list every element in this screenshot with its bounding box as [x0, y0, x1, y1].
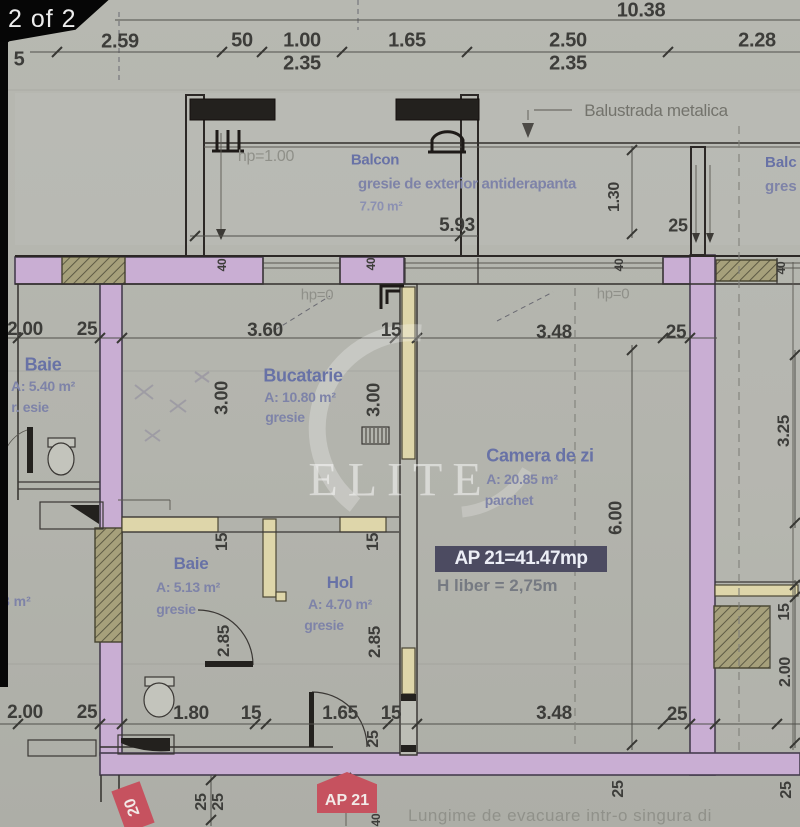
dim-balcony-130: 1.30 — [606, 182, 624, 212]
dim-bot-200: 2.00 — [7, 702, 43, 724]
dim-mid-25b: 25 — [666, 322, 687, 344]
dim-wall-40-c: 40 — [612, 259, 626, 272]
room-hol-name: Hol — [327, 573, 353, 593]
dim-mid-348: 3.48 — [536, 322, 572, 344]
dim-top-250: 2.50 — [549, 30, 587, 53]
dim-v-15b: 15 — [363, 533, 383, 551]
dim-v-15r: 15 — [776, 603, 794, 620]
room-camera-finish: parchet — [485, 492, 533, 508]
dim-bot-25b: 25 — [667, 704, 688, 726]
room-balcon-finish: gresie de exterior antiderapanta — [358, 176, 576, 193]
dim-top-259: 2.59 — [101, 31, 139, 54]
dim-v-300a: 3.00 — [212, 381, 233, 415]
room-hol-finish: gresie — [304, 617, 343, 633]
sink-fixture — [118, 735, 174, 754]
dim-top-228: 2.28 — [738, 30, 776, 53]
dim-wall-25-top: 25 — [668, 216, 687, 237]
radiator-symbol — [362, 427, 389, 444]
dim-top-50: 50 — [231, 30, 253, 53]
dim-v-200r: 2.00 — [777, 657, 795, 687]
room-balcon-name: Balcon — [351, 152, 399, 169]
dim-wall-40-b: 40 — [364, 258, 378, 271]
ceiling-height-label: H liber = 2,75m — [437, 576, 557, 596]
dim-bot-180: 1.80 — [173, 703, 209, 725]
hp-left-label: hp=0 — [301, 287, 334, 304]
room-baie2-area: A: 5.13 m² — [156, 579, 220, 595]
dim-mid-15: 15 — [381, 320, 402, 342]
dim-bot-25-rot: 25 — [365, 730, 383, 747]
dim-strip-25d: 25 — [778, 781, 796, 798]
dim-bot-165: 1.65 — [322, 703, 358, 725]
dim-v-285a: 2.85 — [214, 625, 234, 657]
page-indicator: 2 of 2 — [8, 5, 77, 34]
evacuation-note: Lungime de evacuare intr-o singura di — [408, 806, 800, 826]
dim-bot-15a: 15 — [241, 703, 262, 725]
room-balcon2-name: Balc — [765, 154, 797, 171]
dim-wall-40-a: 40 — [215, 259, 229, 272]
dim-bot-348: 3.48 — [536, 703, 572, 725]
room-camera-area: A: 20.85 m² — [486, 471, 557, 487]
unit-tag-label: 20 — [121, 796, 144, 819]
dim-top-sub-235b: 2.35 — [549, 53, 587, 76]
dim-balcony-593: 5.93 — [439, 215, 475, 237]
apartment-area-box: AP 21=41.47mp — [435, 546, 607, 572]
room-bucatarie-name: Bucatarie — [263, 366, 342, 387]
dim-strip-40: 40 — [369, 814, 383, 827]
room-balcon2-finish: gres — [765, 178, 797, 195]
room-baie1-finish: r. esie — [11, 399, 49, 415]
dim-mid-25a: 25 — [77, 319, 98, 341]
dim-top-165: 1.65 — [388, 30, 426, 53]
dim-bot-25a: 25 — [77, 702, 98, 724]
hp-right-label: hp=0 — [597, 286, 630, 303]
watermark-text: ELITE — [308, 453, 491, 508]
apartment-tag-label: AP 21 — [325, 792, 369, 810]
room-baie2-name: Baie — [174, 554, 209, 574]
toilet-fixture — [48, 438, 75, 475]
dim-wall-40-d: 40 — [774, 262, 788, 275]
dim-strip-25b: 25 — [210, 793, 228, 810]
dim-mid-360: 3.60 — [247, 320, 283, 342]
dim-v-300b: 3.00 — [364, 383, 385, 417]
dim-v-285b: 2.85 — [365, 626, 385, 658]
room-bucatarie-finish: gresie — [265, 409, 304, 425]
dim-v-325: 3.25 — [774, 415, 794, 447]
room-baie2-finish: gresie — [156, 601, 195, 617]
hp-balcony-label: hp=1.00 — [238, 148, 294, 166]
dim-v-15a: 15 — [212, 533, 232, 551]
dim-top-sub-235a: 2.35 — [283, 53, 321, 76]
toilet-fixture-2 — [144, 677, 174, 717]
room-baie1-name: Baie — [25, 355, 62, 376]
dim-total-1038: 10.38 — [617, 0, 666, 23]
dim-bot-15b: 15 — [381, 703, 402, 725]
dim-strip-25a: 25 — [193, 793, 211, 810]
room-hol-area: A: 4.70 m² — [308, 596, 372, 612]
dim-mid-200: 2.00 — [7, 319, 43, 341]
balustrade-label: Balustrada metalica — [584, 101, 728, 121]
room-bucatarie-area: A: 10.80 m² — [264, 389, 335, 405]
dim-v-600: 6.00 — [606, 501, 627, 535]
dim-top-100: 1.00 — [283, 30, 321, 53]
room-baie1-area: A: 5.40 m² — [11, 378, 75, 394]
room-camera-name: Camera de zi — [486, 446, 593, 467]
dim-top-partial-5: 5 — [14, 49, 25, 72]
floor-plan-screenshot: 2.59 50 1.00 1.65 2.50 2.28 2.35 2.35 10… — [0, 0, 800, 827]
dim-strip-25c: 25 — [610, 780, 628, 797]
room-balcon-area: 7.70 m² — [360, 199, 403, 214]
viewer-left-edge — [0, 42, 8, 687]
